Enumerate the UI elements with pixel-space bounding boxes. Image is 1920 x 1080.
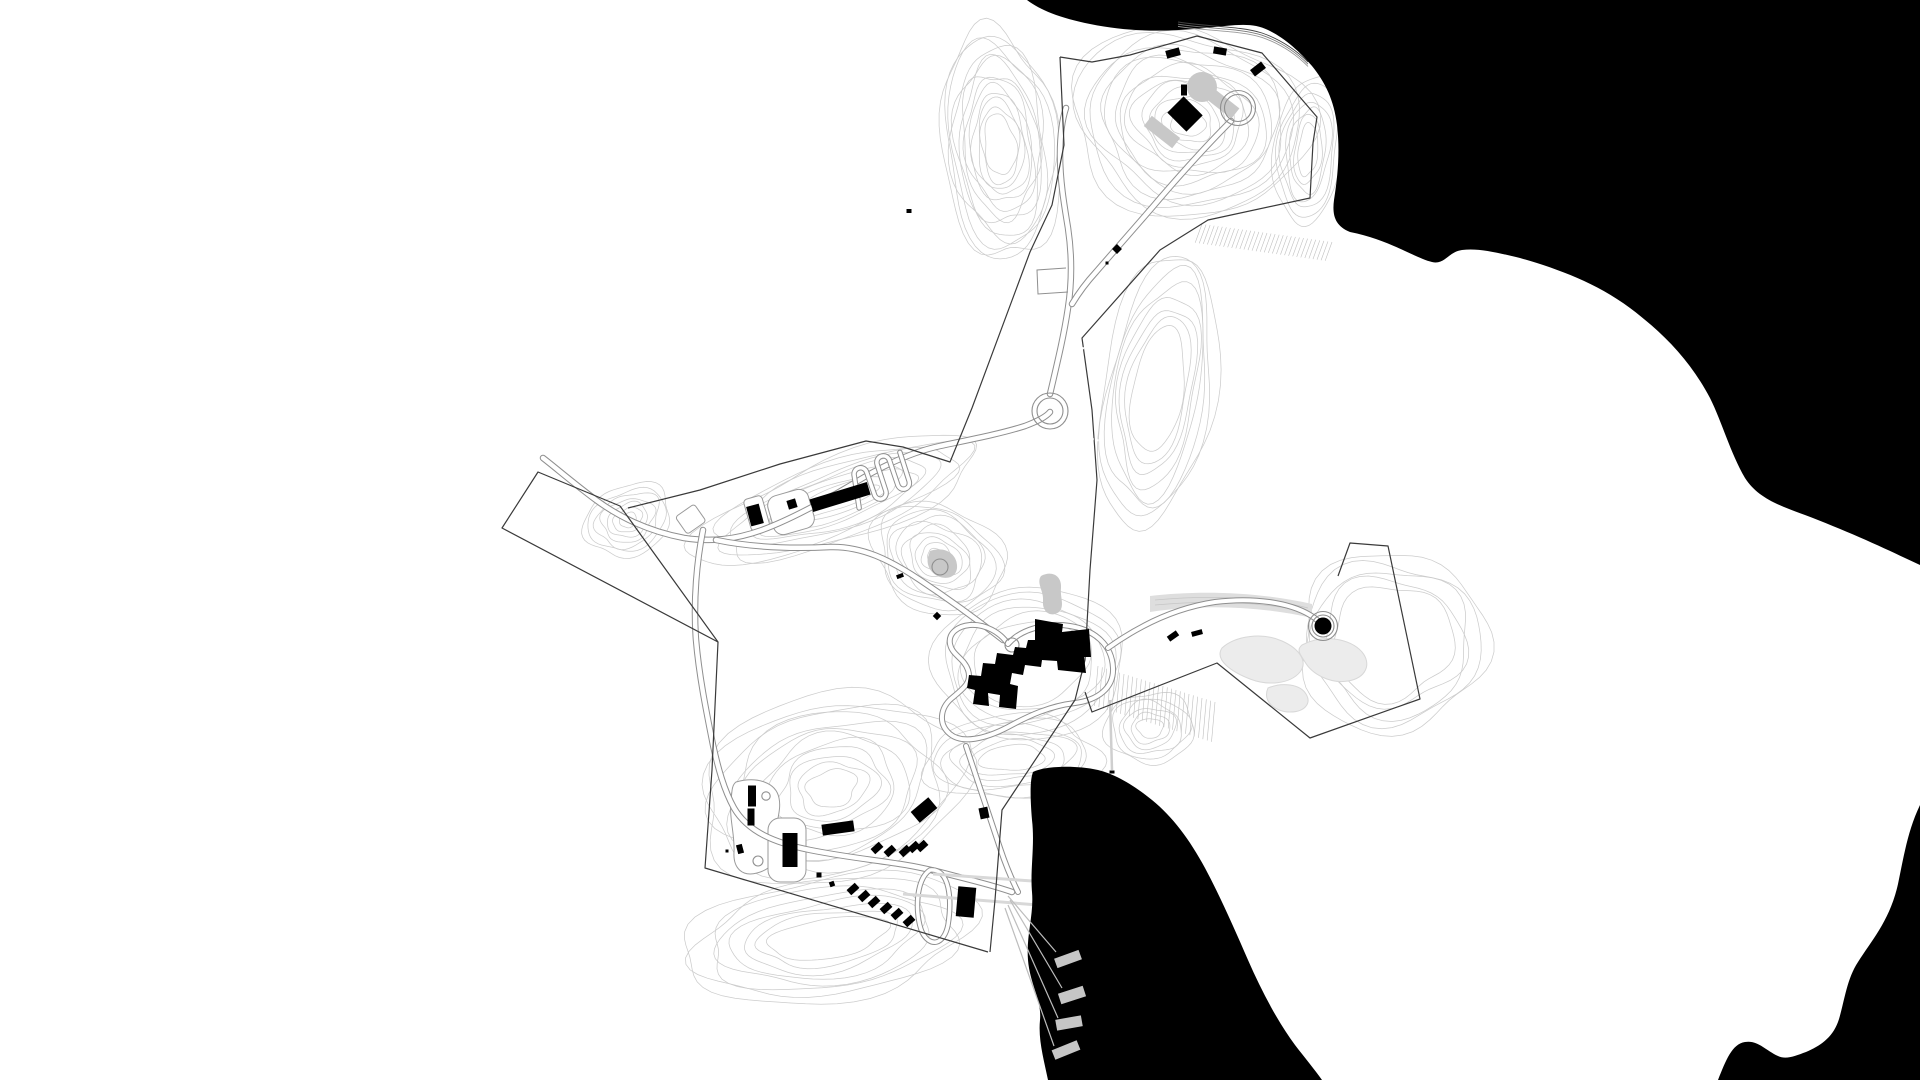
contour-line [978,744,1045,770]
hatch-line [1309,240,1316,259]
contour-line [1131,712,1170,744]
road-surface [1108,600,1322,648]
plateau-spur [1037,268,1068,294]
contour-line [766,917,890,961]
contour-line [1099,256,1210,516]
hatch-line [1256,232,1263,251]
hatch-line [1186,694,1189,734]
contour-line [1112,282,1203,505]
contour-line [775,747,891,829]
boundary-west-chain [628,57,1064,508]
road-loop-to-marina [966,746,1018,892]
hatch-line [1305,239,1312,258]
hatch-line [1280,236,1287,255]
hatch-line [1260,233,1267,252]
hatch-line [1276,235,1283,254]
hatch-line [1177,691,1180,731]
hatch-line [1207,226,1214,245]
building-rect [1213,46,1227,55]
pond-east-2 [1299,639,1367,682]
buildings-layer [726,46,1332,927]
hatch-line [1228,229,1235,248]
building-rect [871,842,884,855]
contours-north-west [939,18,1061,259]
building-rect [726,850,729,853]
hatch-line [1248,231,1255,250]
building-rect [748,809,755,826]
hatch-line [1147,682,1150,722]
hatch-line [1199,225,1206,244]
contour-line [1129,325,1184,451]
contour-line [805,769,858,807]
hatch-line [1244,231,1251,250]
road-to-silo [1108,600,1322,648]
water-southeast-sea [1718,805,1920,1080]
hatch-line [1099,667,1102,707]
hatch-line [1207,701,1210,741]
stair-dash [1082,348,1105,352]
contour-line [745,903,913,976]
hatch-ne-coast [1195,224,1332,261]
hatch-line [1173,690,1176,730]
building-rect [903,915,916,928]
building-dot [1106,262,1109,265]
site-plan [0,0,1920,1080]
contour-line [755,911,898,969]
hatch-line [1297,238,1304,257]
hatch-line [1168,689,1171,729]
hatch-line [1203,699,1206,739]
building-rect [1167,96,1202,131]
building-rect [868,896,881,909]
building-rect [858,890,871,903]
hatch-line [1164,687,1167,727]
boundary-wedge [502,472,718,642]
hatch-line [1125,675,1128,715]
contours-ne-mid-slope [1097,256,1221,531]
hatch-line [1325,242,1332,261]
hatch-line [1194,697,1197,737]
contour-line [1104,265,1205,508]
building-rect [1165,47,1181,58]
building-rect [884,845,897,858]
water-layer [1027,0,1920,1080]
pond-knoll [928,549,958,577]
building-rect [783,833,798,867]
hatch-line [1301,239,1308,258]
building-dot [907,209,912,213]
building-rect [956,886,977,917]
hatch-line [1160,686,1163,726]
road-serpentine-hill [1072,121,1231,304]
hatch-line [1252,232,1259,251]
building-rect [1167,630,1179,641]
building-rect [847,883,860,896]
hatch-line [1293,238,1300,257]
contour-line [985,114,1018,175]
hatch-line [1121,674,1124,714]
road-surface [966,746,1018,892]
hatch-line [1224,228,1231,247]
hatch-line [1155,685,1158,725]
road-north [1050,108,1071,394]
site-plan-canvas [0,0,1920,1080]
hatch-line [1321,241,1328,260]
hatch-line [1232,229,1239,248]
building-rect [748,786,756,807]
hatch-line [1199,698,1202,738]
hatch-line [1181,693,1184,733]
contour-line [1136,719,1164,739]
hatch-line [1142,681,1145,721]
hatch-line [1236,230,1243,249]
building-rect [817,873,822,878]
building-rect [1181,85,1187,96]
hatch-line [1313,240,1320,259]
hatch-line [1212,702,1215,742]
stair-dash [1087,438,1106,442]
hatch-line [1272,235,1279,254]
contour-line [1119,699,1181,754]
hatch-line [1203,225,1210,244]
hatch-line [1264,234,1271,253]
hatch-line [1285,236,1292,255]
hatch-line [1240,230,1247,249]
silo-tank [1315,618,1332,635]
building-rect [933,612,941,620]
marina-path-2 [903,894,1050,906]
building-rect [891,908,904,921]
hatch-line [1289,237,1296,256]
road-surface [917,870,949,942]
building-rect [916,840,929,853]
building-rect [1191,629,1203,637]
building-dot [1110,771,1115,774]
water-south-bay [1028,767,1322,1080]
hatch-line [1215,227,1222,246]
hatch-line [1220,227,1227,246]
hatch-line [1211,226,1218,245]
building-rect [911,797,938,823]
hatch-line [1317,241,1324,260]
building-rect [821,820,854,835]
contour-line [1119,311,1198,475]
road-sw-oval-loop [917,870,949,942]
contour-line [1125,316,1192,463]
hatch-line [1268,234,1275,253]
